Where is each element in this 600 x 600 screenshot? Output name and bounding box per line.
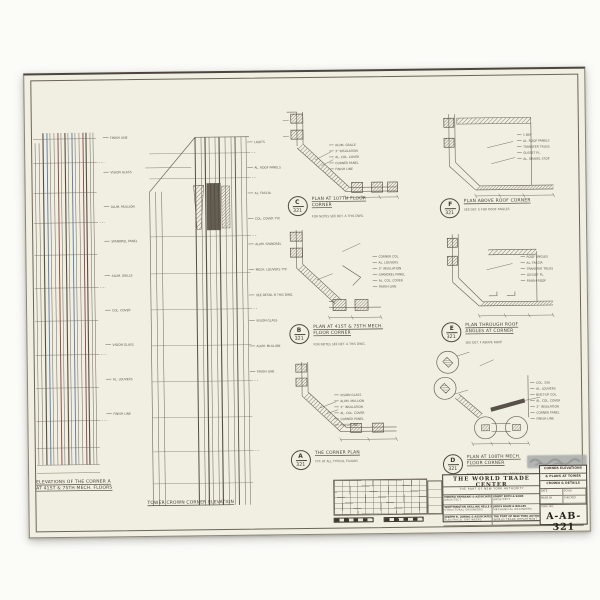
field-label: DATE [541, 489, 548, 492]
detail-C-caption: C 321 PLAN AT 107TH FLOOR CORNER FOR NOT… [288, 195, 382, 222]
firm-entry: WORTHINGTON SKILLING HELLE & JACKSON STR… [443, 505, 492, 516]
drawing-number: A-AB-321 [541, 509, 587, 533]
annotation-label: TRANSFER TRUSS [517, 144, 600, 149]
annotation-label: 1 BAY [517, 132, 600, 137]
annotation-label: GUSSET PL. [517, 150, 600, 155]
firm-role: MECHANICAL ENGINEERS [493, 508, 541, 512]
detail-E: ROOF ANGLESAL. FASCIATRANSFER TRUSSGUSSE… [428, 229, 561, 343]
detail-D-annotations: COL. 339AL. LOUVERSBUILT-UP COL.AL. COL.… [530, 380, 600, 424]
detail-E-bubble: E 321 [441, 322, 461, 342]
crown-elevation: LIGHTSAL. ROOF PANELSAL. FASCIACOL. COVE… [145, 133, 268, 514]
annotation-label: FINISH LINE [530, 416, 600, 421]
detail-E-caption: E 321 PLAN THROUGH ROOF ANGLES AT CORNER… [441, 321, 535, 348]
firm-entry: EMERY ROTH & SONS ARCHITECT [492, 494, 541, 505]
stamp-box [427, 480, 442, 514]
annotation-label: AL. LOUVERS [530, 386, 600, 391]
detail-A: VISION GLASSALUM. MULLION3'' INSULATIONA… [278, 359, 407, 469]
consultant-firms: MINORU YAMASAKI & ASSOCIATES ARCHITECT E… [443, 494, 540, 526]
annotation-label: AL. ROOF PANELS [517, 138, 600, 143]
detail-C: ALUM. GRILLE3'' INSULATIONAL. COL. COVER… [275, 107, 404, 219]
left-elevation: FINISH LINEVISION GLASSALUM. MULLIONSPAN… [33, 122, 156, 495]
detail-D-bubble: D 321 [443, 454, 463, 474]
annotation-label: CORNER PANEL [530, 410, 600, 415]
firm-entry: THE PORT OF NEW YORK AUTHORITY WORLD TRA… [492, 515, 541, 526]
annotation-label: ROOF ANGLES [520, 254, 600, 259]
scanned-page-background: FINISH LINEVISION GLASSALUM. MULLIONSPAN… [0, 0, 600, 600]
firm-role: ARCHITECT [493, 498, 541, 502]
graphic-scale-bar [384, 517, 424, 522]
firm-role: ELECTRICAL ENGINEERS [444, 518, 492, 522]
detail-B-bubble: B 321 [289, 324, 309, 344]
drawing-sheet: FINISH LINEVISION GLASSALUM. MULLIONSPAN… [23, 67, 591, 539]
crown-elevation-drawing [145, 133, 265, 509]
annotation-label: AL. COL. COVER [530, 398, 600, 403]
sheet-title-lines: CORNER ELEVATIONS& PLANS AT TOWERCROWN &… [540, 466, 586, 489]
firm-entry: MINORU YAMASAKI & ASSOCIATES ARCHITECT [443, 495, 492, 506]
title-block: THE WORLD TRADE CENTER THE PORT OF NEW Y… [442, 473, 542, 522]
annotation-label: COL. 339 [530, 380, 600, 385]
graphic-scale-bar [334, 517, 374, 522]
firm-role: WORLD TRADE DEPARTMENT [493, 518, 541, 522]
detail-B: CORNER COL.AL. LOUVERS3'' INSULATIONSPAN… [276, 227, 411, 347]
left-elevation-caption: ELEVATIONS OF THE CORNER A AT 41ST & 75T… [36, 478, 151, 497]
firm-role: ARCHITECT [444, 498, 492, 502]
detail-C-bubble: C 321 [288, 196, 308, 216]
field-label: CHECKED [564, 496, 576, 499]
revision-table [333, 479, 427, 516]
detail-F-bubble: F 321 [440, 198, 460, 218]
annotation-label: AL. GRAVEL STOP [517, 156, 600, 161]
annotation-label: AL. FASCIA [521, 260, 600, 265]
detail-B-caption: B 321 PLAN AT 41ST & 75TH MECH. FLOOR CO… [289, 323, 383, 350]
annotation-label: FINISH ROOF [521, 278, 600, 283]
detail-A-caption: A 321 THE CORNER PLAN TYP. AT ALL TYPICA… [291, 449, 385, 470]
annotation-label: GUSSET PL. [521, 272, 600, 277]
field-label: SCALE [564, 488, 572, 491]
firm-entry: JAROS BAUM & BOLLES MECHANICAL ENGINEERS [492, 504, 541, 515]
firm-role: STRUCTURAL ENGINEERS [444, 508, 492, 512]
firm-entry: JOSEPH R. LORING & ASSOCIATES ELECTRICAL… [444, 515, 493, 526]
annotation-label: 3'' INSULATION [530, 404, 600, 409]
detail-E-annotations: ROOF ANGLESAL. FASCIATRANSFER TRUSSGUSSE… [520, 254, 600, 286]
crown-elevation-caption: TOWER CROWN CORNER ELEVATION [147, 499, 257, 509]
detail-F: 1 BAYAL. ROOF PANELSTRANSFER TRUSSGUSSET… [427, 107, 560, 219]
sheet-fields: DATE SCALE MADE BY CHECKED [540, 488, 586, 505]
detail-F-annotations: 1 BAYAL. ROOF PANELSTRANSFER TRUSSGUSSET… [517, 132, 600, 164]
annotation-label: BUILT-UP COL. [530, 392, 600, 397]
sheet-field: MADE BY [540, 496, 563, 504]
detail-F-caption: F 321 PLAN ABOVE ROOF CORNER SEE DET. E … [440, 197, 534, 218]
sheet-id-block: CORNER ELEVATIONS& PLANS AT TOWERCROWN &… [539, 465, 588, 526]
field-label: MADE BY [541, 496, 552, 499]
sheet-field: CHECKED [563, 496, 586, 504]
detail-A-bubble: A 321 [291, 450, 311, 470]
annotation-label: TRANSFER TRUSS [521, 266, 600, 271]
